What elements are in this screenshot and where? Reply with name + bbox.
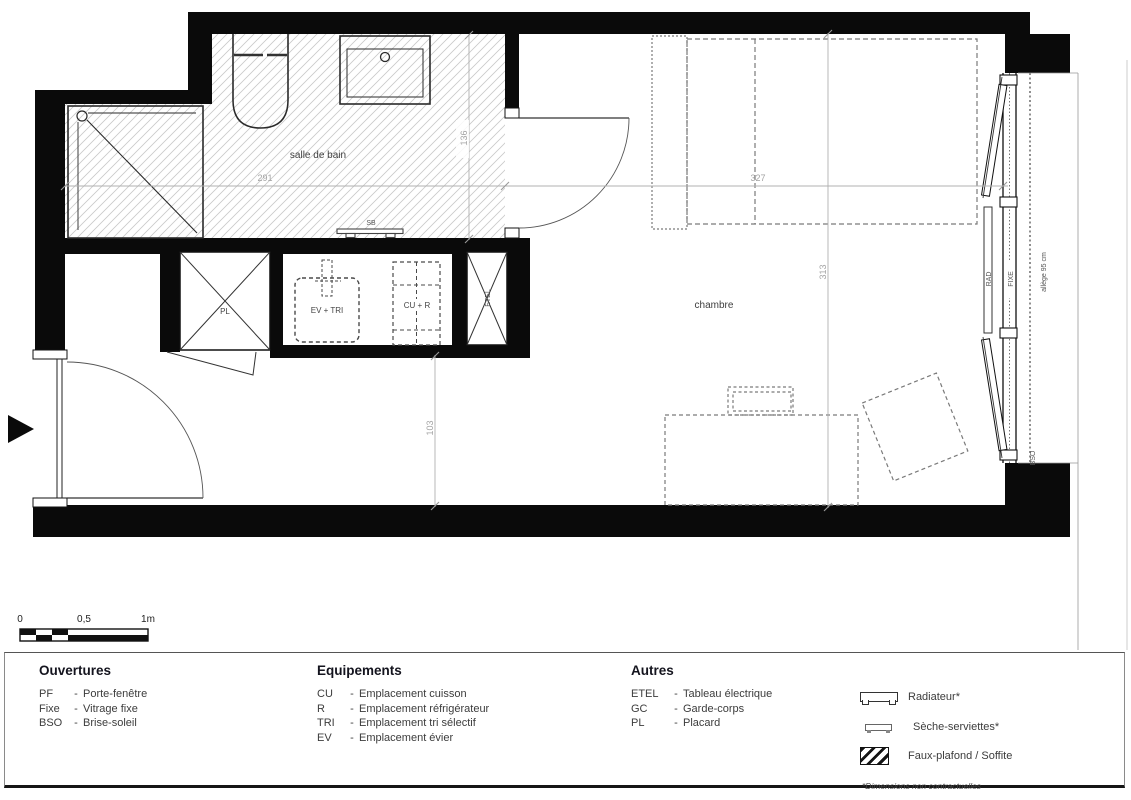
legend-abbr: GC xyxy=(631,702,669,717)
window-assembly xyxy=(982,73,1078,650)
legend-item-gc: GC-Garde-corps xyxy=(631,702,772,717)
fixe-label: FIXE xyxy=(1008,271,1015,287)
legend-abbr: Fixe xyxy=(39,702,69,717)
legend-item-pf: PF-Porte-fenêtre xyxy=(39,687,147,702)
bedroom-furniture xyxy=(652,36,977,505)
radiator-symbol xyxy=(984,207,992,333)
towel-dryer-symbol-label: Sèche-serviettes* xyxy=(913,721,999,733)
legend-abbr: PF xyxy=(39,687,69,702)
legend-label: Tableau électrique xyxy=(683,688,772,700)
legend-dash: - xyxy=(345,687,359,702)
legend-symbols: Radiateur* Sèche-serviettes* Faux-plafon… xyxy=(860,663,1120,783)
legend-equipment: Equipements CU-Emplacement cuisson R-Emp… xyxy=(317,663,489,745)
dim-hallway-width: 103 xyxy=(425,420,435,435)
bathroom-label: salle de bain xyxy=(290,150,346,161)
dim-bedroom-width: 327 xyxy=(750,173,765,183)
legend-label: Emplacement tri sélectif xyxy=(359,717,476,729)
scale-one: 1m xyxy=(141,614,155,625)
wall-kitchen-left xyxy=(160,248,180,352)
legend-dash: - xyxy=(345,702,359,717)
legend-item-ev: EV-Emplacement évier xyxy=(317,731,489,746)
legend-abbr: PL xyxy=(631,716,669,731)
bso-label: BSO xyxy=(1030,450,1037,465)
dim-bathroom-width: 291 xyxy=(257,173,272,183)
legend-dash: - xyxy=(669,687,683,702)
closet-door xyxy=(167,352,256,375)
false-ceiling-symbol-label: Faux-plafond / Soffite xyxy=(908,750,1012,762)
wall-topleft-return xyxy=(188,12,212,104)
legend-item-pl: PL-Placard xyxy=(631,716,772,731)
legend-dash: - xyxy=(345,731,359,746)
legend-item-fixe: Fixe-Vitrage fixe xyxy=(39,702,147,717)
legend-label: Emplacement cuisson xyxy=(359,688,467,700)
legend-dash: - xyxy=(69,702,83,717)
legend-others-title: Autres xyxy=(631,663,772,678)
wall-kitchen-bottom xyxy=(270,345,530,358)
legend-item-etel: ETEL-Tableau électrique xyxy=(631,687,772,702)
legend-dash: - xyxy=(669,716,683,731)
rad-label: RAD xyxy=(986,272,993,287)
legend-abbr: R xyxy=(317,702,345,717)
legend-label: Emplacement réfrigérateur xyxy=(359,703,489,715)
legend-note: *Dimensions non contractuelles xyxy=(862,781,981,791)
bed-outline xyxy=(687,39,977,224)
legend-item-bso: BSO-Brise-soleil xyxy=(39,716,147,731)
wall-pl-kitchen-divider xyxy=(270,254,283,358)
scale-bar: 0 0,5 1m xyxy=(17,614,155,641)
towel-dryer-label: SB xyxy=(366,220,376,227)
legend-dash: - xyxy=(345,716,359,731)
floor-plan-page: salle de bain chambre SB PL EV + TRI CU … xyxy=(0,0,1131,800)
legend-abbr: BSO xyxy=(39,716,69,731)
legend-others: Autres ETEL-Tableau électrique GC-Garde-… xyxy=(631,663,772,731)
bathroom-door-swing xyxy=(519,118,629,228)
legend-equipment-title: Equipements xyxy=(317,663,489,678)
legend-label: Porte-fenêtre xyxy=(83,688,147,700)
false-ceiling-hatch-icon xyxy=(860,747,889,765)
wall-top xyxy=(188,12,1030,34)
legend-item-r: R-Emplacement réfrigérateur xyxy=(317,702,489,717)
wall-bottomright-block xyxy=(1005,463,1070,537)
legend-label: Emplacement évier xyxy=(359,732,453,744)
wall-bottom xyxy=(33,505,1032,537)
chair-outline xyxy=(862,373,968,481)
legend-label: Brise-soleil xyxy=(83,717,137,729)
radiator-icon xyxy=(860,692,898,702)
legend-dash: - xyxy=(69,716,83,731)
dim-bedroom-depth: 313 xyxy=(818,264,828,279)
legend-dash: - xyxy=(69,687,83,702)
legend-label: Placard xyxy=(683,717,720,729)
wall-topright-block xyxy=(1005,34,1070,73)
ev-tri-label: EV + TRI xyxy=(311,306,344,315)
entrance-arrow xyxy=(8,415,34,443)
legend-openings: Ouvertures PF-Porte-fenêtre Fixe-Vitrage… xyxy=(39,663,147,731)
entry-door-frame xyxy=(57,359,62,498)
legend-abbr: CU xyxy=(317,687,345,702)
legend-label: Garde-corps xyxy=(683,703,744,715)
wall-kitchen-right xyxy=(507,240,530,358)
legend-panel: Ouvertures PF-Porte-fenêtre Fixe-Vitrage… xyxy=(4,652,1125,788)
legend-label: Vitrage fixe xyxy=(83,703,138,715)
false-ceiling-hatch-area xyxy=(65,34,505,238)
legend-dash: - xyxy=(669,702,683,717)
headboard-outline xyxy=(652,36,687,229)
closet-pl-label: PL xyxy=(220,307,230,316)
allege-label: allège 95 cm xyxy=(1041,252,1048,292)
legend-symbol-false-ceiling: Faux-plafond / Soffite xyxy=(860,747,1012,765)
legend-symbol-radiator: Radiateur* xyxy=(860,691,960,703)
legend-item-tri: TRI-Emplacement tri sélectif xyxy=(317,716,489,731)
radiator-symbol-label: Radiateur* xyxy=(908,691,960,703)
dim-bathroom-depth: 136 xyxy=(459,130,469,145)
legend-symbol-towel-dryer: Sèche-serviettes* xyxy=(860,721,999,733)
legend-item-cu: CU-Emplacement cuisson xyxy=(317,687,489,702)
entry-door-swing xyxy=(67,362,203,498)
desk-outline xyxy=(665,415,858,505)
scale-zero: 0 xyxy=(17,614,23,625)
legend-openings-title: Ouvertures xyxy=(39,663,147,678)
legend-abbr: ETEL xyxy=(631,687,669,702)
etel-label: ETEL xyxy=(485,289,492,307)
wall-bath-bedroom-upper xyxy=(505,34,519,110)
scale-half: 0,5 xyxy=(77,614,91,625)
wall-left xyxy=(35,90,65,353)
bedroom-label: chambre xyxy=(695,300,734,311)
wall-kitchen-etel-divider xyxy=(452,250,467,358)
cu-r-label: CU + R xyxy=(404,301,431,310)
legend-abbr: EV xyxy=(317,731,345,746)
towel-dryer-icon xyxy=(865,724,892,731)
legend-abbr: TRI xyxy=(317,716,345,731)
